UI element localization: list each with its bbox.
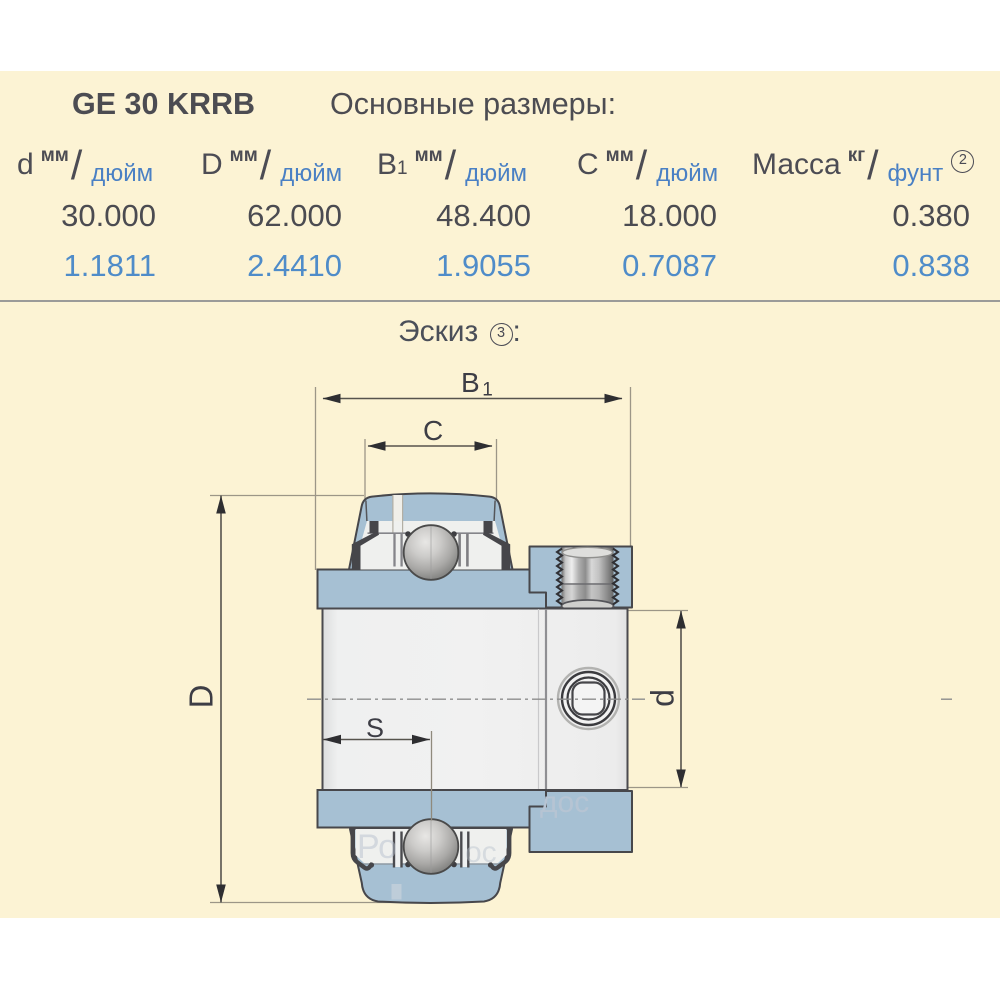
svg-text:ос: ос: [465, 836, 497, 869]
svg-text:дос: дос: [540, 786, 589, 819]
svg-text:Ро: Ро: [357, 828, 397, 866]
svg-text:B1: B1: [461, 367, 493, 401]
svg-text:S: S: [366, 713, 384, 743]
svg-text:C: C: [423, 415, 443, 446]
svg-text:D: D: [183, 685, 220, 709]
svg-text:d: d: [644, 689, 680, 707]
